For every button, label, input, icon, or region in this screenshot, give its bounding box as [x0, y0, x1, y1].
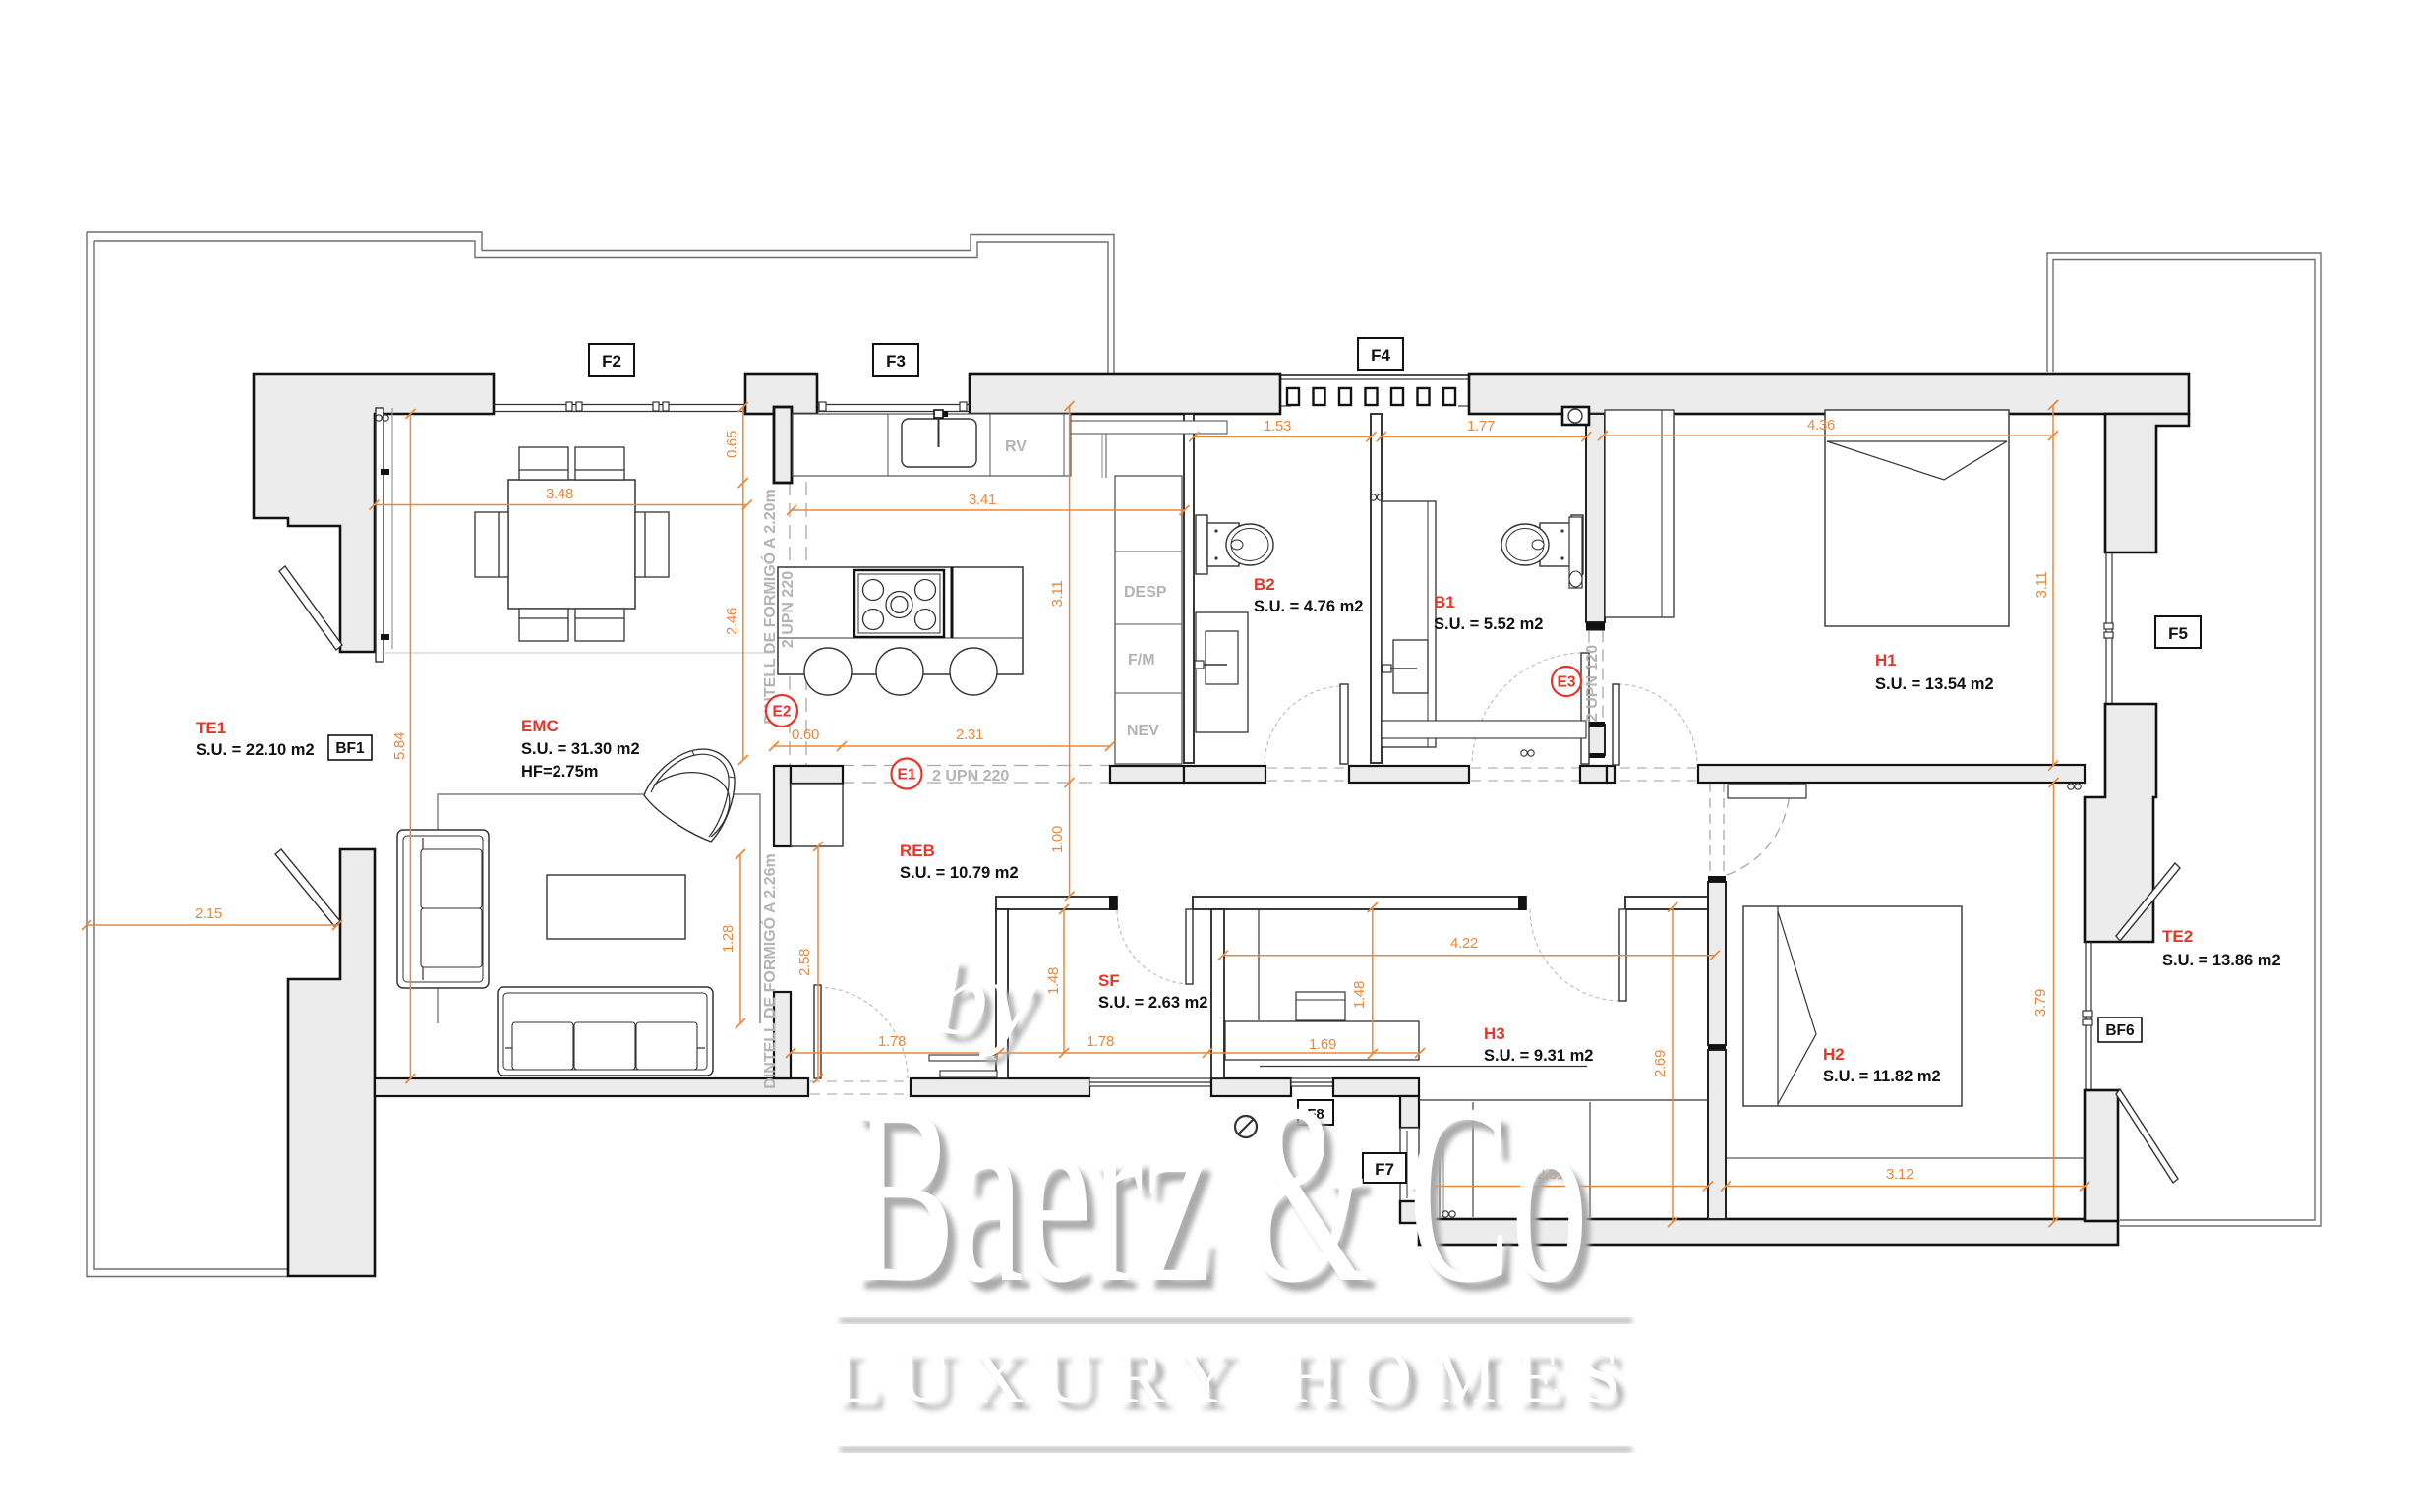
svg-text:TE1: TE1 — [196, 719, 226, 737]
svg-text:H2: H2 — [1823, 1045, 1845, 1064]
svg-text:1.28: 1.28 — [720, 925, 736, 953]
svg-text:F3: F3 — [886, 352, 906, 371]
svg-text:0.60: 0.60 — [792, 727, 819, 743]
svg-text:S.U. = 10.79 m2: S.U. = 10.79 m2 — [900, 864, 1019, 882]
svg-text:H3: H3 — [1484, 1024, 1505, 1043]
svg-text:2 UPN 220: 2 UPN 220 — [932, 768, 1009, 785]
svg-text:4.22: 4.22 — [1450, 935, 1478, 952]
svg-text:BF6: BF6 — [2105, 1022, 2135, 1039]
svg-text:F/M: F/M — [1128, 652, 1155, 669]
svg-text:3.11: 3.11 — [1049, 581, 1066, 608]
svg-text:H1: H1 — [1875, 651, 1897, 669]
svg-text:2.58: 2.58 — [796, 949, 813, 976]
svg-text:REB: REB — [900, 842, 935, 860]
svg-text:1.48: 1.48 — [1045, 967, 1062, 995]
svg-text:1.78: 1.78 — [878, 1033, 906, 1050]
svg-text:EMC: EMC — [521, 717, 559, 735]
svg-text:3.41: 3.41 — [969, 492, 996, 508]
svg-text:4.36: 4.36 — [1807, 417, 1835, 434]
svg-text:F2: F2 — [602, 352, 621, 371]
svg-text:2 UPN 220: 2 UPN 220 — [780, 571, 796, 648]
svg-text:B1: B1 — [1434, 593, 1455, 611]
svg-text:2.15: 2.15 — [195, 905, 222, 922]
svg-text:2 UPN 120: 2 UPN 120 — [1584, 645, 1601, 722]
svg-text:HF=2.75m: HF=2.75m — [521, 763, 598, 781]
svg-text:S.U. = 5.52 m2: S.U. = 5.52 m2 — [1434, 615, 1543, 633]
svg-text:3.11: 3.11 — [2033, 572, 2050, 599]
svg-text:F4: F4 — [1371, 346, 1390, 365]
svg-text:S.U. = 13.54 m2: S.U. = 13.54 m2 — [1875, 675, 1994, 693]
svg-text:E2: E2 — [773, 704, 792, 721]
svg-text:DINTELL DE FORMIGÓ A 2.26m: DINTELL DE FORMIGÓ A 2.26m — [760, 853, 779, 1088]
svg-text:S.U. = 13.86 m2: S.U. = 13.86 m2 — [2162, 952, 2281, 969]
svg-text:S.U. = 22.10 m2: S.U. = 22.10 m2 — [196, 741, 315, 759]
svg-text:3.79: 3.79 — [2032, 989, 2049, 1017]
svg-text:B2: B2 — [1254, 575, 1275, 594]
svg-text:2.69: 2.69 — [1652, 1050, 1669, 1077]
svg-text:BF1: BF1 — [335, 740, 365, 757]
svg-text:F5: F5 — [2168, 624, 2188, 643]
svg-text:1.78: 1.78 — [1087, 1033, 1114, 1050]
svg-text:E1: E1 — [898, 767, 916, 784]
svg-text:2.31: 2.31 — [956, 727, 983, 743]
svg-text:DINTELL DE FORMIGÓ A 2.20m: DINTELL DE FORMIGÓ A 2.20m — [760, 489, 779, 724]
svg-text:3.12: 3.12 — [1886, 1166, 1913, 1183]
svg-text:RV: RV — [1005, 438, 1027, 455]
svg-text:1.53: 1.53 — [1264, 418, 1291, 435]
svg-text:NEV: NEV — [1127, 723, 1159, 739]
svg-text:1.00: 1.00 — [1049, 826, 1066, 853]
svg-text:1.77: 1.77 — [1467, 418, 1495, 435]
svg-text:1.48: 1.48 — [1351, 981, 1368, 1009]
svg-text:3.48: 3.48 — [546, 486, 573, 502]
svg-text:S.U. = 2.63 m2: S.U. = 2.63 m2 — [1098, 994, 1207, 1012]
svg-text:0.65: 0.65 — [724, 431, 740, 458]
svg-text:Baerz & Co: Baerz & Co — [853, 1051, 1588, 1336]
svg-text:S.U. = 4.76 m2: S.U. = 4.76 m2 — [1254, 598, 1363, 615]
svg-text:TE2: TE2 — [2162, 927, 2193, 946]
svg-text:5.84: 5.84 — [391, 732, 408, 760]
svg-text:SF: SF — [1098, 971, 1120, 990]
svg-text:S.U. = 31.30 m2: S.U. = 31.30 m2 — [521, 740, 640, 758]
svg-text:S.U. = 11.82 m2: S.U. = 11.82 m2 — [1823, 1068, 1941, 1085]
svg-text:by: by — [935, 940, 1035, 1057]
svg-text:E3: E3 — [1558, 674, 1576, 691]
svg-text:2.46: 2.46 — [724, 608, 740, 635]
svg-text:DESP: DESP — [1124, 584, 1167, 601]
